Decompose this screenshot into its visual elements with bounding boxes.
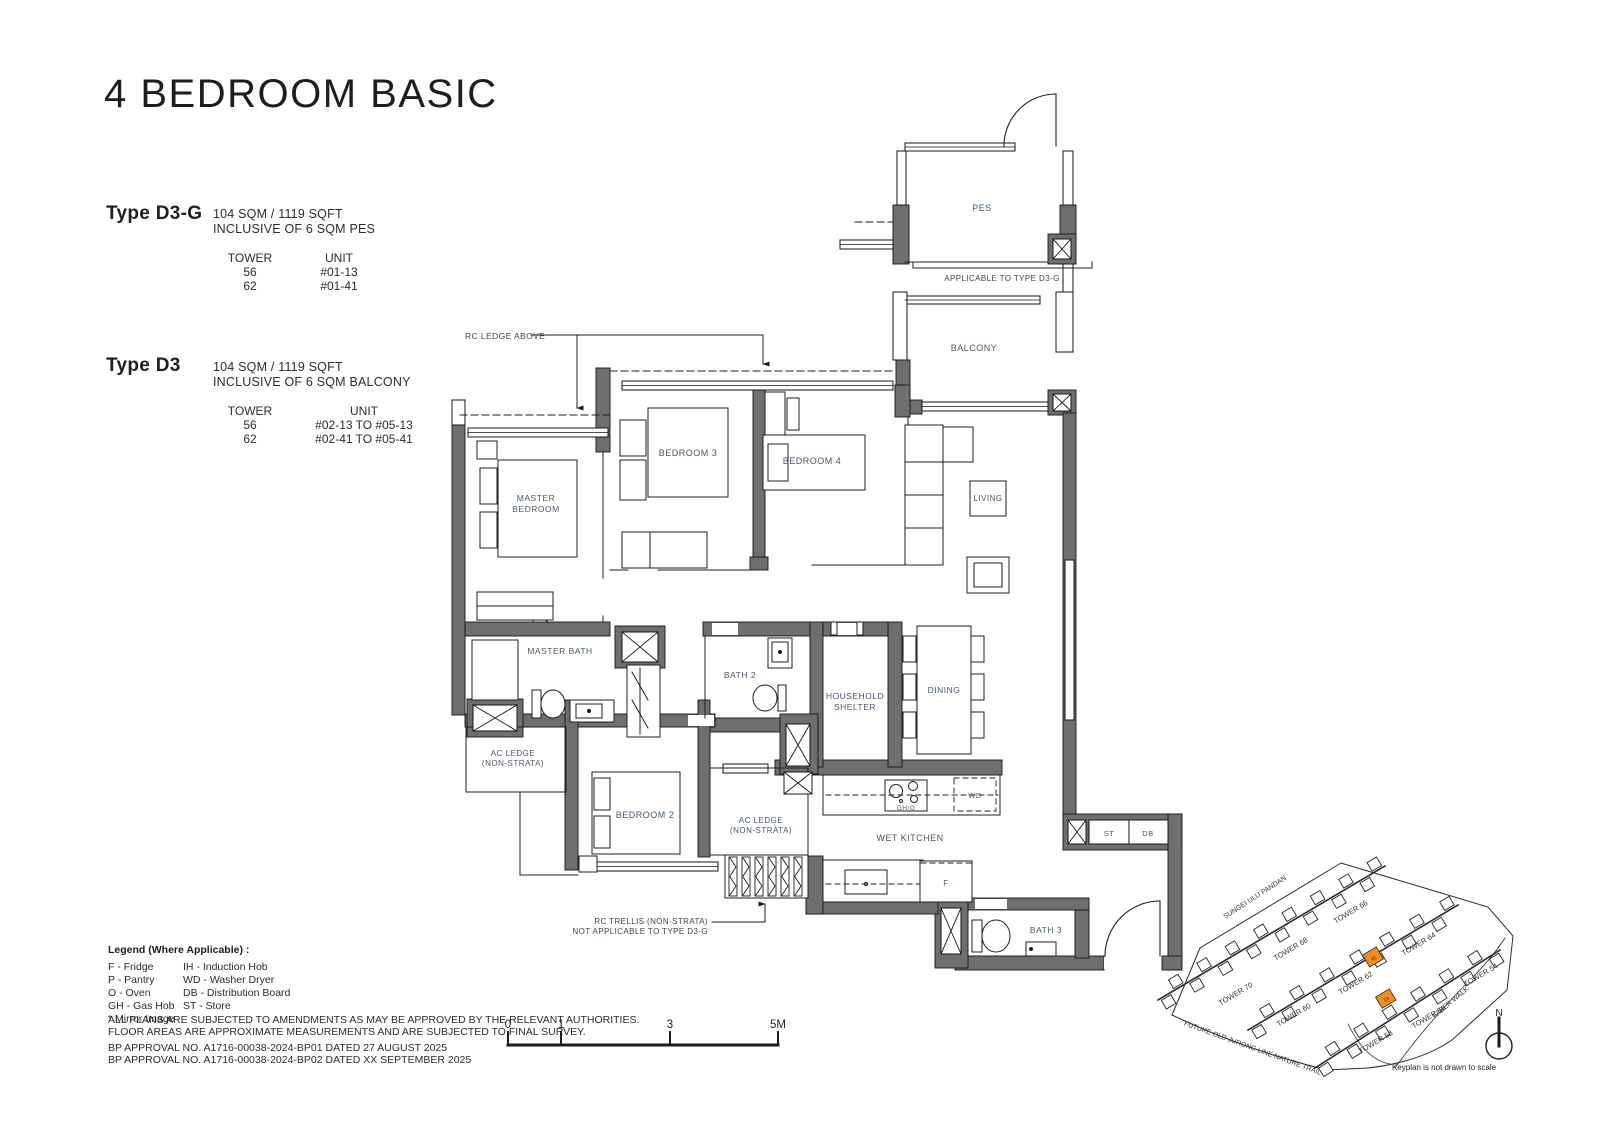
label-master-bedroom-2: BEDROOM [512, 504, 559, 514]
label-gh-o: GH/O [897, 805, 916, 812]
label-fridge: F [943, 879, 948, 888]
label-ac-ledge1b: (NON-STRATA) [482, 759, 544, 768]
label-ac-ledge2a: AC LEDGE [739, 816, 783, 825]
road-jurong-label: FUTURE OLD JURONG LINE NATURE TRAIL [1183, 1020, 1322, 1076]
label-bedroom2: BEDROOM 2 [616, 810, 675, 820]
floor-plan: PES BALCONY BEDROOM 3 BEDROOM 4 LIVING M… [0, 0, 1608, 1135]
label-ac-ledge2b: (NON-STRATA) [730, 826, 792, 835]
label-household-2: SHELTER [834, 702, 876, 712]
label-master-bedroom-1: MASTER [517, 493, 555, 503]
applicable-label: APPLICABLE TO TYPE D3-G [944, 274, 1059, 283]
scale-1: 1 [558, 1019, 564, 1031]
rc-trellis-label-2: NOT APPLICABLE TO TYPE D3-G [572, 927, 708, 936]
tower-60-label: TOWER 60 [1275, 1001, 1312, 1028]
st-db-boxes [1089, 820, 1168, 844]
label-ac-ledge1a: AC LEDGE [491, 749, 535, 758]
rc-ledge-above-label: RC LEDGE ABOVE [465, 331, 545, 341]
label-household-1: HOUSEHOLD [826, 691, 884, 701]
label-living: LIVING [973, 494, 1002, 503]
label-balcony: BALCONY [951, 343, 998, 353]
keyplan-buildings [1158, 857, 1504, 1077]
scale-0: 0 [505, 1019, 511, 1031]
scale-5m: 5M [770, 1019, 786, 1031]
rc-trellis-label-1: RC TRELLIS (NON-STRATA) [594, 917, 708, 926]
scale-bar: 0 1 3 5M [505, 1019, 786, 1045]
label-dining: DINING [928, 685, 961, 695]
rc-trellis [725, 855, 808, 898]
tower-70-label: TOWER 70 [1217, 980, 1254, 1007]
label-db: DB [1142, 829, 1153, 838]
label-bedroom4: BEDROOM 4 [783, 456, 842, 466]
keyplan-caption: Keyplan is not drawn to scale [1392, 1063, 1497, 1072]
keyplan: 41 13 TOWER 70 TOWER 68 TOWER 66 TOWER 6… [1158, 857, 1513, 1077]
label-bath3: BATH 3 [1030, 925, 1062, 935]
label-wd: WD [968, 791, 982, 800]
north-arrow: N [1486, 1008, 1512, 1059]
north-label: N [1495, 1008, 1502, 1019]
road-sungei-label: SUNGEI ULU PANDAN [1223, 875, 1288, 921]
label-master-bath: MASTER BATH [527, 646, 592, 656]
label-wet-kitchen: WET KITCHEN [876, 833, 943, 843]
annotations: RC LEDGE ABOVE APPLICABLE TO TYPE D3-G R… [465, 274, 1060, 936]
label-bedroom3: BEDROOM 3 [659, 448, 718, 458]
room-labels: PES BALCONY BEDROOM 3 BEDROOM 4 LIVING M… [482, 203, 1154, 935]
tower-68-label: TOWER 68 [1272, 935, 1309, 962]
scale-3: 3 [667, 1019, 673, 1031]
label-st: ST [1104, 829, 1115, 838]
floorplan-page: 4 BEDROOM BASIC Type D3-G 104 SQM / 1119… [0, 0, 1608, 1135]
label-bath2: BATH 2 [724, 670, 756, 680]
label-pes: PES [972, 203, 992, 213]
